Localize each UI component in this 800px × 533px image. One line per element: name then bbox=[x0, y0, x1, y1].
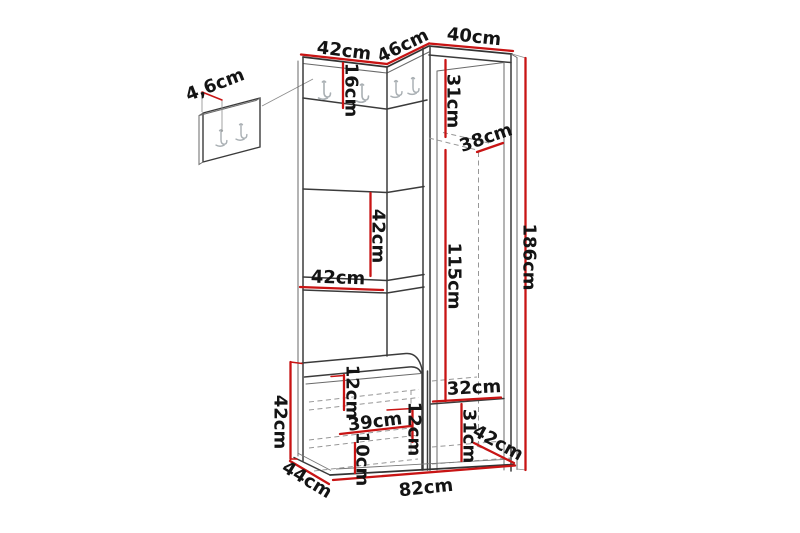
dim-label-bottom-shelf-width: 32cm bbox=[446, 376, 502, 400]
dim-label-bench-height: 42cm bbox=[270, 395, 291, 449]
base-plinth bbox=[294, 454, 514, 476]
wardrobe-outer-right-edge bbox=[511, 54, 517, 470]
dim-label-detail-panel-depth: 4,6cm bbox=[183, 64, 248, 106]
coat-hook-icon bbox=[408, 78, 419, 95]
dim-label-hanging-height: 115cm bbox=[444, 243, 465, 310]
dim-label-top-shelf-height: 31cm bbox=[443, 74, 464, 128]
dim-label-seat-box-height: 12cm bbox=[342, 365, 363, 419]
dim-label-bench-bottom-height: 10cm bbox=[352, 432, 373, 486]
dim-label-base-width: 82cm bbox=[398, 475, 454, 502]
corner-wardrobe bbox=[423, 46, 526, 471]
dimension-labels: 42cm 46cm 40cm 4,6cm 16cm 31cm 38cm 42cm… bbox=[183, 24, 540, 503]
dim-label-shelf-depth: 38cm bbox=[457, 119, 515, 157]
wardrobe-top-front-edge bbox=[429, 55, 511, 63]
dim-label-left-panel-width: 42cm bbox=[316, 37, 373, 64]
coat-hook-icon bbox=[319, 81, 331, 99]
furniture-dimension-diagram: 42cm 46cm 40cm 4,6cm 16cm 31cm 38cm 42cm… bbox=[0, 0, 800, 533]
dim-label-middle-shelf-width: 42cm bbox=[310, 267, 365, 290]
dim-label-hook-strip-height: 16cm bbox=[341, 63, 362, 117]
diagram-canvas: 42cm 46cm 40cm 4,6cm 16cm 31cm 38cm 42cm… bbox=[0, 0, 800, 533]
coat-hook-icon bbox=[391, 81, 402, 98]
detail-callout-line bbox=[262, 79, 313, 106]
dim-label-total-height: 186cm bbox=[519, 224, 540, 291]
shelf-line-upper bbox=[303, 187, 424, 193]
detail-panel-front-face bbox=[203, 98, 260, 162]
dim-label-side-panel-height: 12cm bbox=[404, 402, 425, 456]
dim-label-middle-section-height: 42cm bbox=[368, 209, 389, 263]
dim-ticks-bench-height bbox=[291, 362, 303, 459]
